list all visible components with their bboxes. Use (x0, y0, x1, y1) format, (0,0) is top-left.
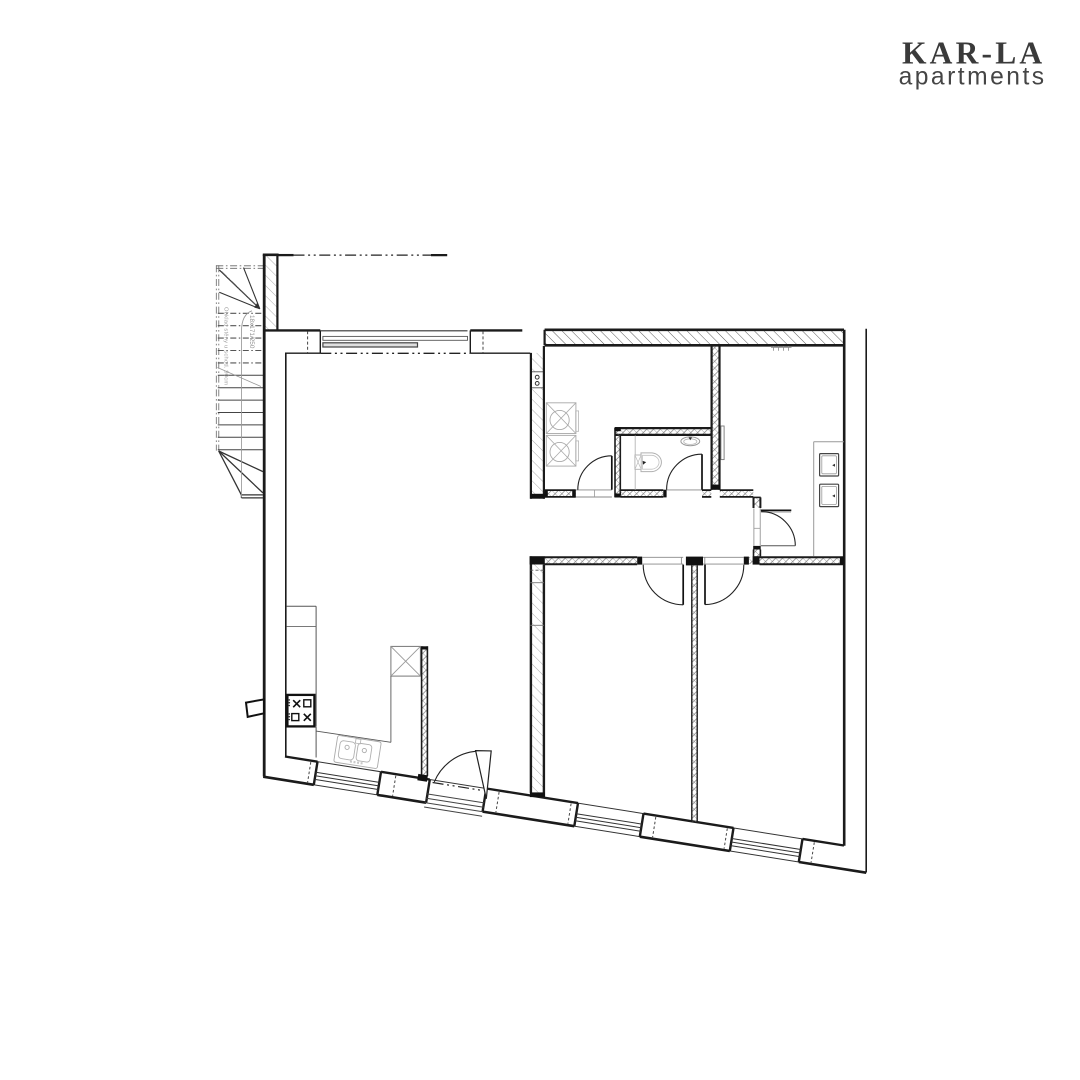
svg-text:18x171/250: 18x171/250 (248, 315, 255, 349)
svg-text:apartments: apartments (899, 64, 1047, 91)
svg-text:Obklad stěny u schod. 90cm: Obklad stěny u schod. 90cm (223, 307, 229, 385)
